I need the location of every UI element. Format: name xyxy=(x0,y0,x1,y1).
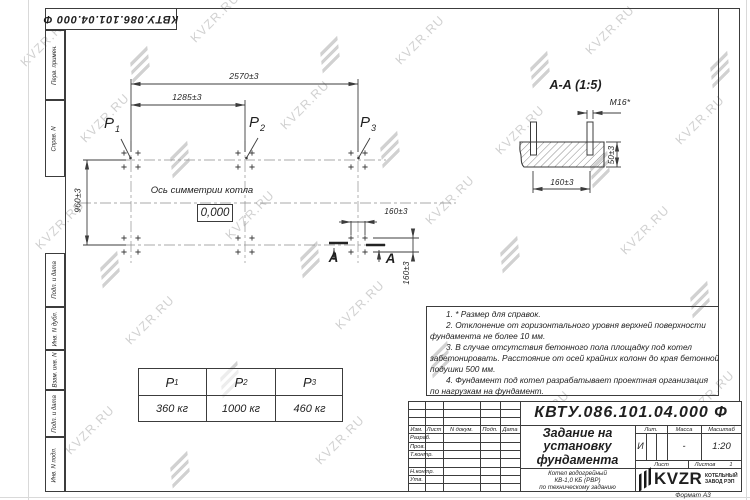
margin-box-inv-dubl: Инв. N дубл. xyxy=(45,307,65,350)
sig-row-nkontr: Н.контр. xyxy=(410,468,443,475)
load-subscript: 3 xyxy=(371,123,377,133)
corner-stamp-doc-number: КВТУ.086.101.04.000 Ф xyxy=(43,13,178,25)
note-line: подушки 500 мм. xyxy=(430,364,718,375)
loads-table-header-p2: P2 xyxy=(207,371,275,393)
table-load-symbol: P xyxy=(165,375,174,390)
format-note: Формат А3 xyxy=(648,491,738,499)
title-block-doc-number: КВТУ.086.101.04.000 Ф xyxy=(521,402,741,424)
change-header-list: Лист xyxy=(425,426,443,433)
sheets-label: Листов xyxy=(692,461,718,468)
title-block: КВТУ.086.101.04.000 Ф Задание на установ… xyxy=(408,401,742,492)
margin-box-label: Подп. и дата xyxy=(52,395,58,433)
section-dim-spacing: 160±3 xyxy=(541,177,583,187)
dim-label-half-width: 1285±3 xyxy=(152,91,222,102)
margin-box-podp-data-2: Подп. и дата xyxy=(45,390,65,437)
drawing-title-line: фундамента xyxy=(521,453,634,467)
scale-value: 1:20 xyxy=(701,436,742,456)
note-line: 3. В случае отсутствия бетонного пола пл… xyxy=(430,342,718,353)
loads-table-header-p3: P3 xyxy=(276,371,343,393)
lit-header: Лит. xyxy=(635,426,667,433)
margin-box-vzam-inv: Взам. инв. N xyxy=(45,350,65,390)
section-letter-right: А xyxy=(383,251,398,266)
sheets-value: 1 xyxy=(726,461,736,468)
sig-row-tkontr: Т.контр. xyxy=(410,451,443,458)
section-view-title: А-А (1:5) xyxy=(533,78,618,92)
loads-table: P1 P2 P3 360 кг 1000 кг 460 кг xyxy=(138,368,343,422)
section-letter-left: А xyxy=(326,250,341,265)
drawing-title-line: установку xyxy=(521,440,634,454)
product-name-line: Котел водогрейный xyxy=(521,470,634,477)
title-block-product-name: Котел водогрейный КВ-1,0 КБ (РВР) по тех… xyxy=(521,470,634,492)
margin-box-perv-primen: Перв. примен. xyxy=(45,30,65,100)
lit-value: И xyxy=(635,436,646,456)
load-point-label-p1: P1 xyxy=(104,115,121,134)
sig-row-utv: Утв. xyxy=(410,476,443,483)
drawing-title-line: Задание на xyxy=(521,426,634,440)
mass-value: - xyxy=(667,436,701,456)
dim-label-depth: 960±3 xyxy=(72,179,83,223)
title-block-drawing-title: Задание на установку фундамента xyxy=(521,426,634,467)
kvzr-logo-caption: КОТЕЛЬНЫЙ ЗАВОД РЭП xyxy=(705,473,741,486)
note-line: по нагрузкам на фундамент. xyxy=(430,386,718,397)
load-subscript: 1 xyxy=(115,124,121,134)
logo-caption-line: ЗАВОД РЭП xyxy=(705,479,741,485)
change-header-data: Дата xyxy=(500,426,520,433)
technical-notes: 1. * Размер для справок. 2. Отклонение о… xyxy=(430,309,718,397)
table-load-subscript: 3 xyxy=(312,378,316,387)
load-point-label-p3: P3 xyxy=(360,114,377,133)
margin-box-label: Взам. инв. N xyxy=(52,353,58,388)
level-mark-box: 0,000 xyxy=(197,204,233,222)
section-dim-height: 50±3 xyxy=(606,135,616,175)
change-header-izm: Изм. xyxy=(408,426,425,433)
dim-label-full-width: 2570±3 xyxy=(209,70,279,81)
load-symbol: P xyxy=(104,115,115,132)
margin-box-label: Инв. N подл. xyxy=(52,447,58,482)
margin-box-podp-data-1: Подп. и дата xyxy=(45,253,65,307)
dim-label-bolt-horizontal: 160±3 xyxy=(376,206,416,216)
margin-box-label: Справ. N xyxy=(52,126,58,151)
load-point-label-p2: P2 xyxy=(249,114,266,133)
margin-box-label: Подп. и дата xyxy=(52,261,58,299)
boiler-symmetry-axis-label: Ось симметрии котла xyxy=(152,184,252,196)
loads-table-value-p2: 1000 кг xyxy=(207,398,275,420)
loads-table-value-p3: 460 кг xyxy=(276,398,343,420)
plan-anchor-bolt-marks xyxy=(121,150,367,254)
note-line: забетонировать. Расстояние от осей крайн… xyxy=(430,353,718,364)
table-load-symbol: P xyxy=(234,375,243,390)
load-symbol: P xyxy=(249,114,260,131)
table-load-subscript: 1 xyxy=(174,378,178,387)
note-line: 4. Фундамент под котел разрабатывает про… xyxy=(430,375,718,386)
change-header-ndocum: N докум. xyxy=(443,426,480,433)
note-line: фундамента не более 10 мм. xyxy=(430,331,718,342)
product-name-line: по техническому заданию xyxy=(521,484,634,491)
mass-header: Масса xyxy=(667,426,701,433)
loads-table-value-p1: 360 кг xyxy=(138,398,206,420)
margin-box-label: Инв. N дубл. xyxy=(52,311,58,346)
sheet-label: Лист xyxy=(635,461,688,468)
table-load-symbol: P xyxy=(303,375,312,390)
level-mark-value: 0,000 xyxy=(201,207,230,219)
product-name-line: КВ-1,0 КБ (РВР) xyxy=(521,477,634,484)
load-symbol: P xyxy=(360,114,371,131)
load-subscript: 2 xyxy=(260,123,266,133)
change-header-podp: Подп. xyxy=(480,426,500,433)
drawing-sheet: KVZR.RU KVZR.RU KVZR.RU KVZR.RU KVZR.RU … xyxy=(0,0,750,500)
scale-header: Масштаб xyxy=(701,426,742,433)
note-line: 2. Отклонение от горизонтального уровня … xyxy=(430,320,718,331)
corner-stamp: КВТУ.086.101.04.000 Ф xyxy=(45,8,177,30)
bolt-thread-label: М16* xyxy=(604,97,636,107)
table-load-subscript: 2 xyxy=(243,378,247,387)
plan-centerlines xyxy=(80,141,456,263)
sig-row-prov: Пров. xyxy=(410,443,443,450)
plan-dimensions xyxy=(83,79,419,261)
sig-row-razrab: Разраб. xyxy=(410,434,443,441)
note-line: 1. * Размер для справок. xyxy=(430,309,718,320)
dim-label-bolt-vertical: 160±3 xyxy=(401,253,411,293)
margin-box-label: Перв. примен. xyxy=(52,45,58,85)
kvzr-logo-text: KVZR xyxy=(654,468,706,490)
loads-table-header-p1: P1 xyxy=(138,371,206,393)
margin-box-sprav-n: Справ. N xyxy=(45,100,65,177)
margin-box-inv-podl: Инв. N подл. xyxy=(45,437,65,492)
